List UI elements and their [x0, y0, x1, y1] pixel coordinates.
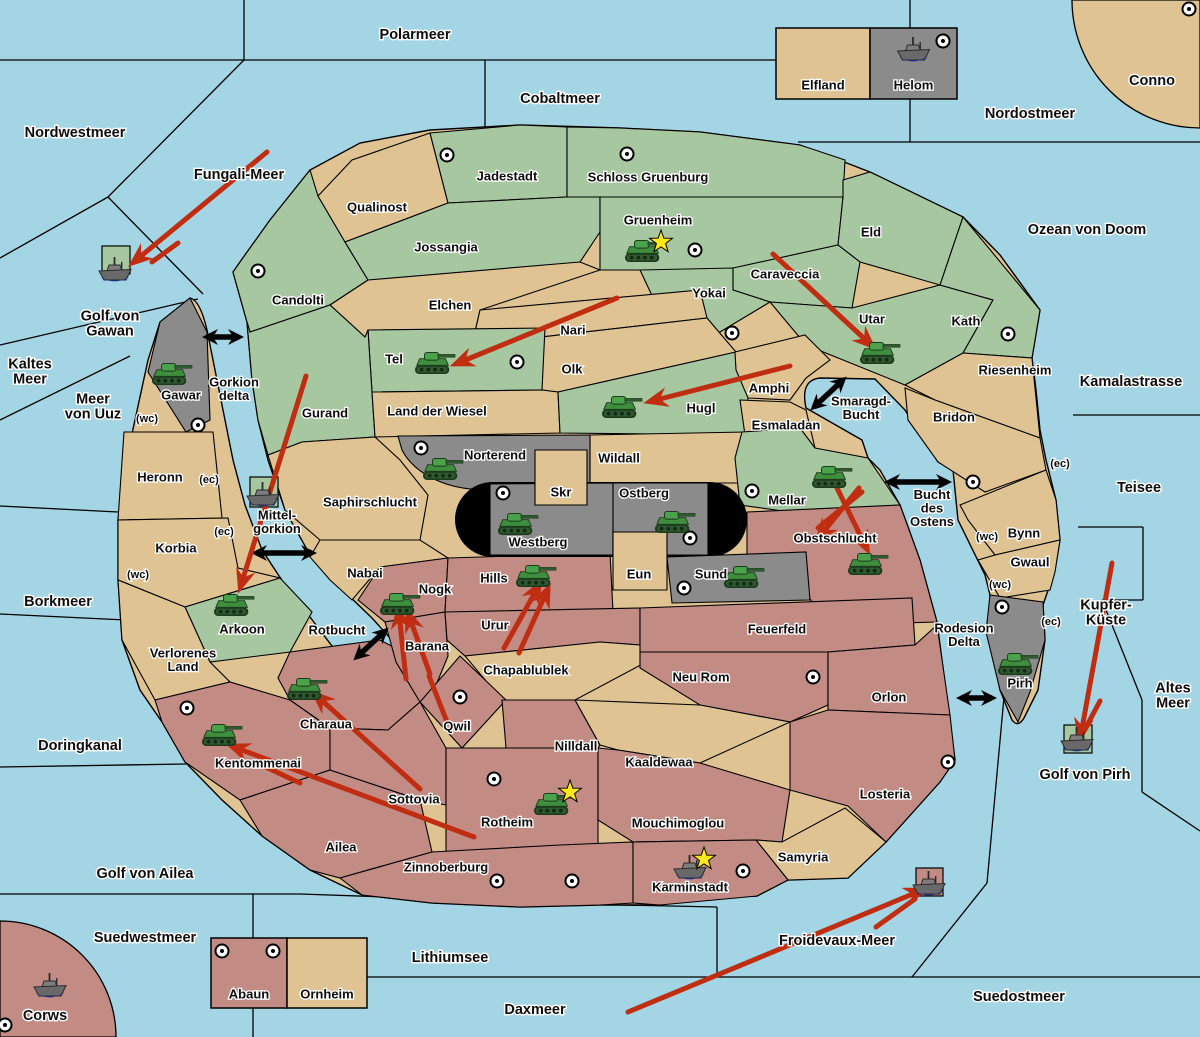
water-label: Bucht — [843, 407, 881, 422]
territory-label: Chapablublek — [483, 662, 569, 677]
sea-label: Gawan — [86, 323, 134, 339]
sea-label: Golf von Pirh — [1039, 767, 1130, 783]
city-marker-dot — [750, 489, 754, 493]
city-marker-dot — [495, 879, 499, 883]
territory-label: Esmaladan — [752, 417, 821, 432]
territory-label: Qualinost — [347, 199, 408, 214]
city-marker-dot — [946, 760, 950, 764]
territory-label: Jossangia — [414, 239, 478, 254]
legend-label: Elfland — [801, 77, 844, 92]
coast-type-marker: (ec) — [214, 526, 234, 538]
sea-label: Golf von Ailea — [97, 866, 195, 882]
territory-label: Feuerfeld — [748, 621, 807, 636]
territory-label: Hills — [480, 570, 507, 585]
city-marker-dot — [682, 586, 686, 590]
city-marker-dot — [3, 1023, 7, 1027]
coast-type-marker: (wc) — [976, 531, 998, 543]
territory-label: Ailea — [325, 839, 357, 854]
territory-label: Barana — [405, 638, 450, 653]
territory-label: Gurand — [302, 405, 348, 420]
water-label: gorkion — [253, 521, 301, 536]
coast-type-marker: (wc) — [127, 569, 149, 581]
sea-label: von Uuz — [65, 406, 121, 422]
legend-label: Helom — [894, 77, 934, 92]
territory-label: Nabai — [347, 565, 382, 580]
city-marker-dot — [492, 777, 496, 781]
corner-territory-label: Conno — [1129, 73, 1175, 89]
water-label: Rotbucht — [308, 622, 366, 637]
city-marker-dot — [445, 153, 449, 157]
sea-label: Fungali-Meer — [194, 167, 285, 183]
city-marker-dot — [271, 949, 275, 953]
city-marker-dot — [625, 152, 629, 156]
territory-label: Eld — [861, 224, 881, 239]
territory-label: Kaaldewaa — [625, 754, 693, 769]
water-label: Ostens — [910, 514, 954, 529]
territory-label: Ostberg — [619, 485, 669, 500]
city-marker-dot — [693, 248, 697, 252]
sea-label: Nordostmeer — [985, 106, 1076, 122]
territory-label: Wildall — [598, 450, 640, 465]
sea-label: Suedwestmeer — [94, 930, 197, 946]
city-marker-dot — [971, 480, 975, 484]
territory-label: Candolti — [272, 292, 324, 307]
territory-label: Rotheim — [481, 814, 533, 829]
territory-label: Bynn — [1008, 525, 1041, 540]
sea-label: Lithiumsee — [412, 950, 489, 966]
sea-label: Teisee — [1117, 480, 1161, 496]
sea-label: Meer — [13, 371, 47, 387]
city-marker-dot — [811, 675, 815, 679]
coast-type-marker: (ec) — [199, 474, 219, 486]
territory-label: Kath — [952, 313, 981, 328]
territory-label: Korbia — [155, 540, 197, 555]
territory-label: Samyria — [778, 849, 829, 864]
territory-label: Gwaul — [1010, 554, 1049, 569]
territory-label: Pirh — [1007, 675, 1032, 690]
city-marker-dot — [1006, 332, 1010, 336]
sea-label: Suedostmeer — [973, 989, 1065, 1005]
sea-label: Kamalastrasse — [1080, 374, 1182, 390]
legend-label: Ornheim — [300, 986, 353, 1001]
city-marker-dot — [196, 423, 200, 427]
city-marker-dot — [941, 39, 945, 43]
coast-type-marker: (ec) — [1041, 616, 1061, 628]
territory-label: Zinnoberburg — [404, 859, 489, 874]
sea-label: Kupfer- — [1080, 597, 1132, 613]
city-marker-dot — [730, 331, 734, 335]
territory-label: Heronn — [137, 469, 183, 484]
territory-label: Bridon — [933, 409, 975, 424]
map-canvas: ElflandHelomAbaunOrnheimCandoltiQualinos… — [0, 0, 1200, 1037]
territory-label: Saphirschlucht — [323, 494, 418, 509]
sea-label: Daxmeer — [504, 1002, 566, 1018]
water-label: delta — [219, 388, 250, 403]
territory-label: Mouchimoglou — [632, 815, 724, 830]
sea-label: Doringkanal — [38, 738, 122, 754]
territory-label: Nogk — [419, 581, 452, 596]
territory-label: Obstschlucht — [793, 530, 877, 545]
sea-label: Küste — [1086, 612, 1126, 628]
territory-label: Sottovia — [388, 791, 440, 806]
territory-label: Westberg — [509, 534, 568, 549]
territory-jadestadt[interactable] — [430, 125, 567, 203]
coast-type-marker: (wc) — [136, 413, 158, 425]
territory-label: Losteria — [860, 786, 911, 801]
territory-label: Land der Wiesel — [387, 403, 487, 418]
territory-label: Karminstadt — [652, 879, 729, 894]
territory-label: Amphi — [749, 380, 789, 395]
territory-label: Orlon — [872, 689, 907, 704]
territory-label: Skr — [551, 484, 572, 499]
sea-label: Kaltes — [8, 356, 52, 372]
sea-label: Ozean von Doom — [1028, 222, 1146, 238]
city-marker-dot — [185, 706, 189, 710]
territory-label: Mellar — [768, 492, 806, 507]
territory-label: Nari — [560, 322, 585, 337]
territory-label: Hugl — [687, 400, 716, 415]
city-marker-dot — [515, 360, 519, 364]
city-marker-dot — [256, 269, 260, 273]
sea-label: Meer — [1156, 695, 1190, 711]
territory-label: Jadestadt — [477, 168, 538, 183]
territory-label: Caraveccia — [751, 266, 820, 281]
sea-label: Polarmeer — [380, 27, 451, 43]
sea-label: Golf von — [81, 308, 140, 324]
sea-label: Altes — [1155, 680, 1190, 696]
territory-label: Kentommenai — [215, 755, 301, 770]
city-marker-dot — [1187, 7, 1191, 11]
city-marker-dot — [458, 695, 462, 699]
territory-label: Tel — [385, 351, 403, 366]
territory-label: Gawar — [161, 387, 201, 402]
city-marker-dot — [1000, 605, 1004, 609]
territory-label: Nilldall — [555, 738, 598, 753]
sea-label: Borkmeer — [24, 594, 92, 610]
war-game-map: ElflandHelomAbaunOrnheimCandoltiQualinos… — [0, 0, 1200, 1037]
territory-label: Riesenheim — [979, 362, 1052, 377]
territory-label: Utar — [859, 311, 885, 326]
city-marker-dot — [570, 879, 574, 883]
sea-label: Cobaltmeer — [520, 91, 600, 107]
water-label: Delta — [948, 634, 981, 649]
territory-label: Olk — [562, 361, 584, 376]
territory-label: Yokai — [692, 285, 726, 300]
city-marker-dot — [741, 869, 745, 873]
territory-label: Eun — [627, 566, 652, 581]
territory-label: Urur — [481, 617, 508, 632]
city-marker-dot — [501, 491, 505, 495]
territory-label: Norterend — [464, 447, 526, 462]
territory-label: Elchen — [429, 297, 472, 312]
sea-label: Froidevaux-Meer — [779, 933, 895, 949]
city-marker-dot — [419, 446, 423, 450]
territory-label: Sund — [695, 566, 728, 581]
sea-label: Nordwestmeer — [25, 125, 126, 141]
territory-label: Qwil — [443, 718, 470, 733]
sea-label: Meer — [76, 391, 110, 407]
territory-label: Neu Rom — [672, 669, 729, 684]
legend-label: Abaun — [229, 986, 270, 1001]
territory-label: Arkoon — [219, 621, 265, 636]
territory-label: Land — [167, 659, 198, 674]
city-marker-dot — [688, 536, 692, 540]
territory-label: Schloss Gruenburg — [588, 169, 709, 184]
corner-territory-label: Corws — [23, 1008, 67, 1024]
territory-label: Charaua — [300, 716, 353, 731]
territory-label: Gruenheim — [624, 212, 693, 227]
city-marker-dot — [220, 949, 224, 953]
coast-type-marker: (wc) — [989, 579, 1011, 591]
coast-type-marker: (ec) — [1050, 458, 1070, 470]
